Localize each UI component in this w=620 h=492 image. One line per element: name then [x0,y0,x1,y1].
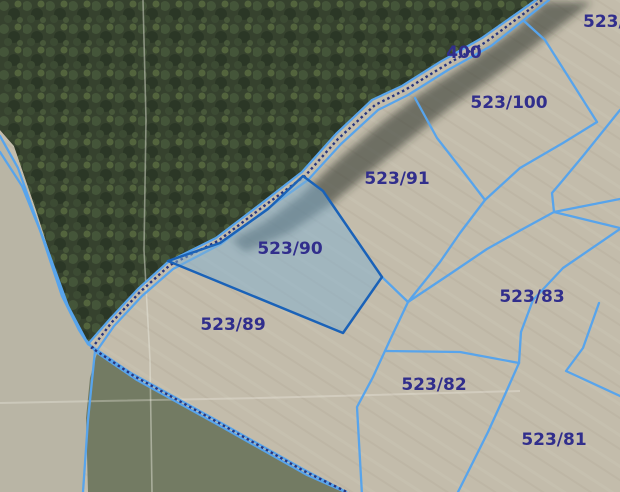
parcel-label-523-90: 523/90 [257,239,322,259]
map-canvas[interactable]: 400 523/ 523/100 523/91 523/90 523/89 52… [0,0,620,492]
parcel-label-523-82: 523/82 [401,375,466,395]
parcel-label-523-83: 523/83 [499,287,564,307]
parcel-label-523-91: 523/91 [364,169,429,189]
parcel-label-523-81: 523/81 [521,430,586,450]
parcel-label-523: 523/ [583,12,620,32]
road-label-400: 400 [446,43,482,63]
parcel-label-523-100: 523/100 [470,93,547,113]
parcel-label-523-89: 523/89 [200,315,265,335]
